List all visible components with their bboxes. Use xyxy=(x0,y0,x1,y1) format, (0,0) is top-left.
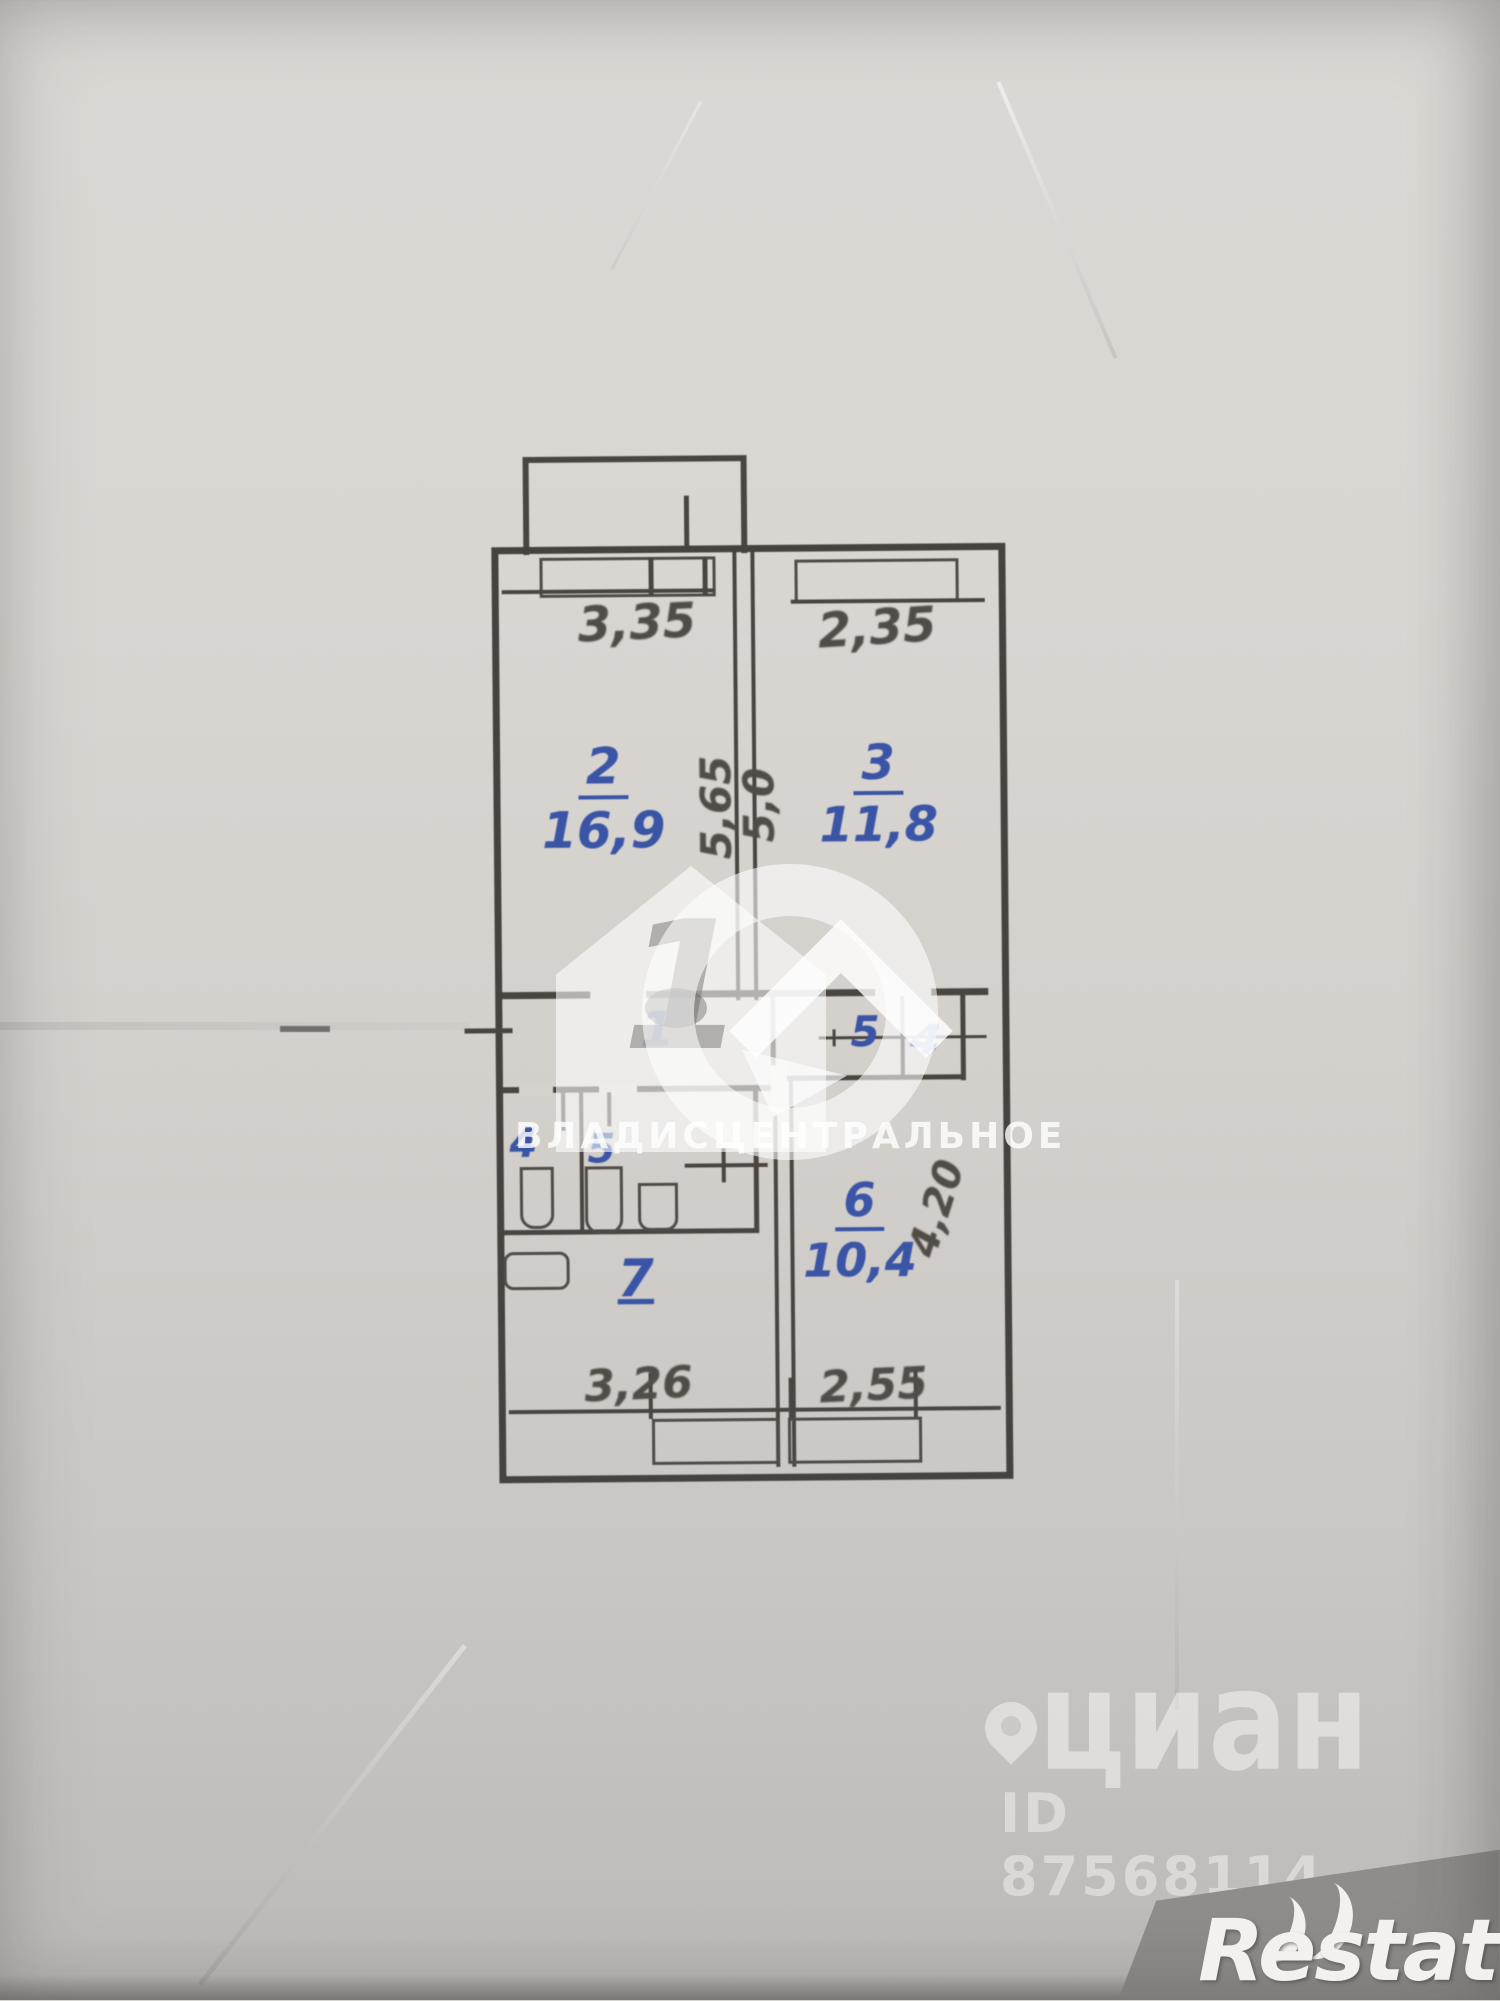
door-opening-wc xyxy=(519,1085,553,1095)
crease-top-right xyxy=(997,81,1118,359)
crease-top-center xyxy=(611,100,703,269)
room-6-number: 6 xyxy=(835,1177,883,1231)
bathtub-icon xyxy=(585,1166,624,1234)
room-6-label: 6 10,4 xyxy=(802,1177,918,1284)
kitchen-door-line xyxy=(685,1163,768,1168)
pencil-stray-mark xyxy=(280,1026,330,1032)
dim-bottom-right: 2,55 xyxy=(813,1361,935,1410)
dim-mid-left-vertical: 5,65 xyxy=(695,752,736,862)
stove-icon xyxy=(503,1252,569,1291)
dim-bottom-left: 3,26 xyxy=(578,1360,700,1409)
room-2-area: 16,9 xyxy=(539,805,669,856)
balcony-outline xyxy=(523,455,748,555)
window-bottom-right xyxy=(788,1417,922,1464)
dim-top-left: 3,35 xyxy=(571,596,703,650)
room-3-label: 3 11,8 xyxy=(808,738,949,849)
sink-icon xyxy=(638,1183,678,1231)
room-3-area: 11,8 xyxy=(809,800,949,849)
crease-bottom-left xyxy=(198,1644,467,1986)
agency-name: ВЛАДИСЦЕНТРАЛЬНОЕ xyxy=(515,1116,1015,1157)
dim-mid-right-vertical: 5,0 xyxy=(738,760,779,850)
room-3-number: 3 xyxy=(853,739,903,795)
toilet-icon xyxy=(520,1167,555,1229)
cian-pin-hole xyxy=(1001,1716,1021,1736)
room-2-label: 2 16,9 xyxy=(538,741,669,856)
photo-of-paper-floor-plan: { "plan": { "room2": {"number": "2", "ar… xyxy=(0,0,1500,2000)
dimension-tick-left-wall xyxy=(464,1028,512,1033)
balcony-inner-line xyxy=(684,496,689,548)
room-2-number: 2 xyxy=(578,741,629,799)
cian-wordmark: циан xyxy=(1038,1651,1369,1790)
kitchen-number: 7 xyxy=(610,1253,660,1305)
window-tick-2 xyxy=(789,1378,793,1418)
window-bottom-left xyxy=(652,1418,780,1465)
room-6-area: 10,4 xyxy=(802,1237,917,1284)
crease-mid-left xyxy=(0,1022,470,1030)
restate-wordmark: Restate xyxy=(1198,1908,1500,1994)
dim-top-right: 2,35 xyxy=(811,600,944,656)
